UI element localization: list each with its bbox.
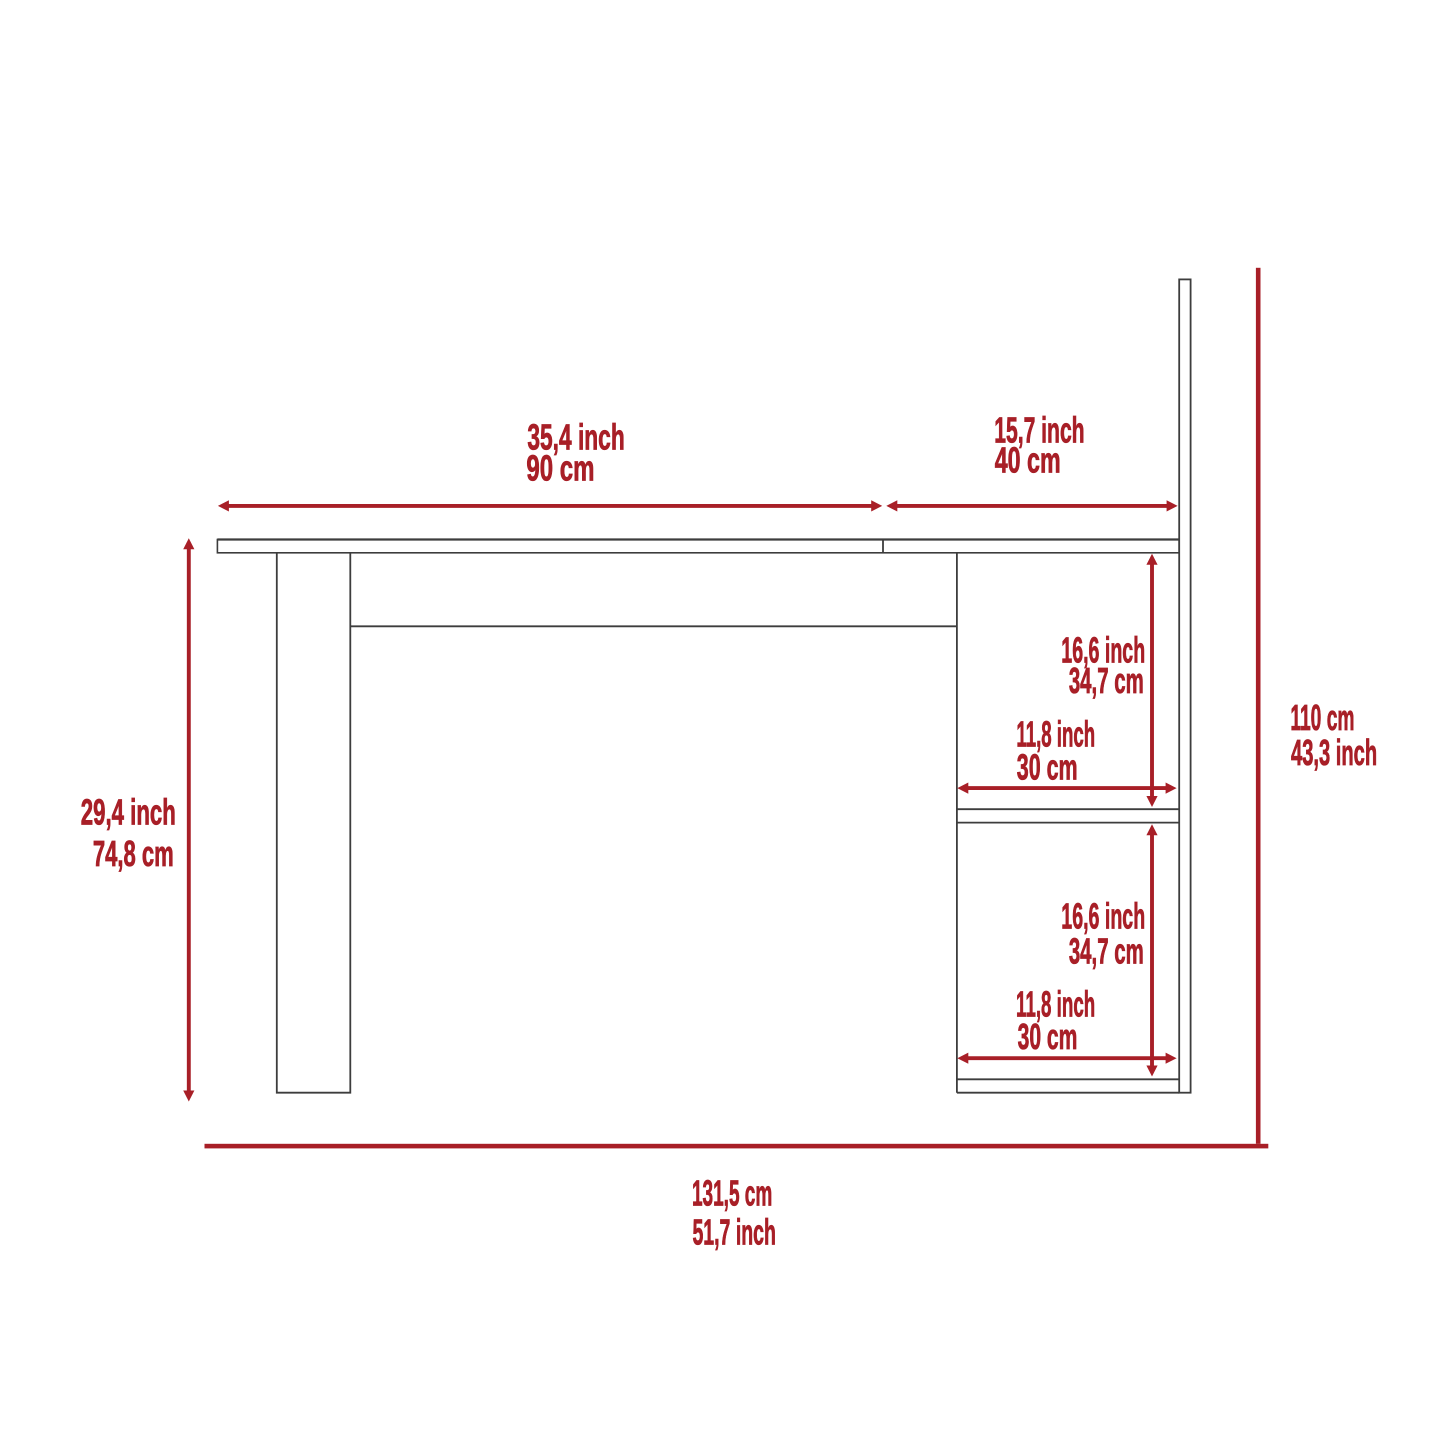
svg-text:40 cm: 40 cm: [995, 442, 1061, 481]
svg-text:43,3 inch: 43,3 inch: [1291, 734, 1377, 774]
svg-text:90 cm: 90 cm: [526, 449, 594, 489]
svg-text:131,5 cm: 131,5 cm: [692, 1174, 772, 1214]
svg-text:29,4 inch: 29,4 inch: [81, 793, 176, 833]
svg-text:34,7 cm: 34,7 cm: [1069, 662, 1144, 701]
svg-text:74,8 cm: 74,8 cm: [93, 834, 174, 874]
svg-text:110 cm: 110 cm: [1290, 699, 1354, 739]
svg-text:34,7 cm: 34,7 cm: [1069, 933, 1144, 972]
svg-text:30 cm: 30 cm: [1017, 748, 1078, 788]
svg-text:51,7 inch: 51,7 inch: [692, 1213, 775, 1253]
svg-text:16,6 inch: 16,6 inch: [1061, 897, 1145, 937]
svg-text:30 cm: 30 cm: [1018, 1017, 1078, 1057]
